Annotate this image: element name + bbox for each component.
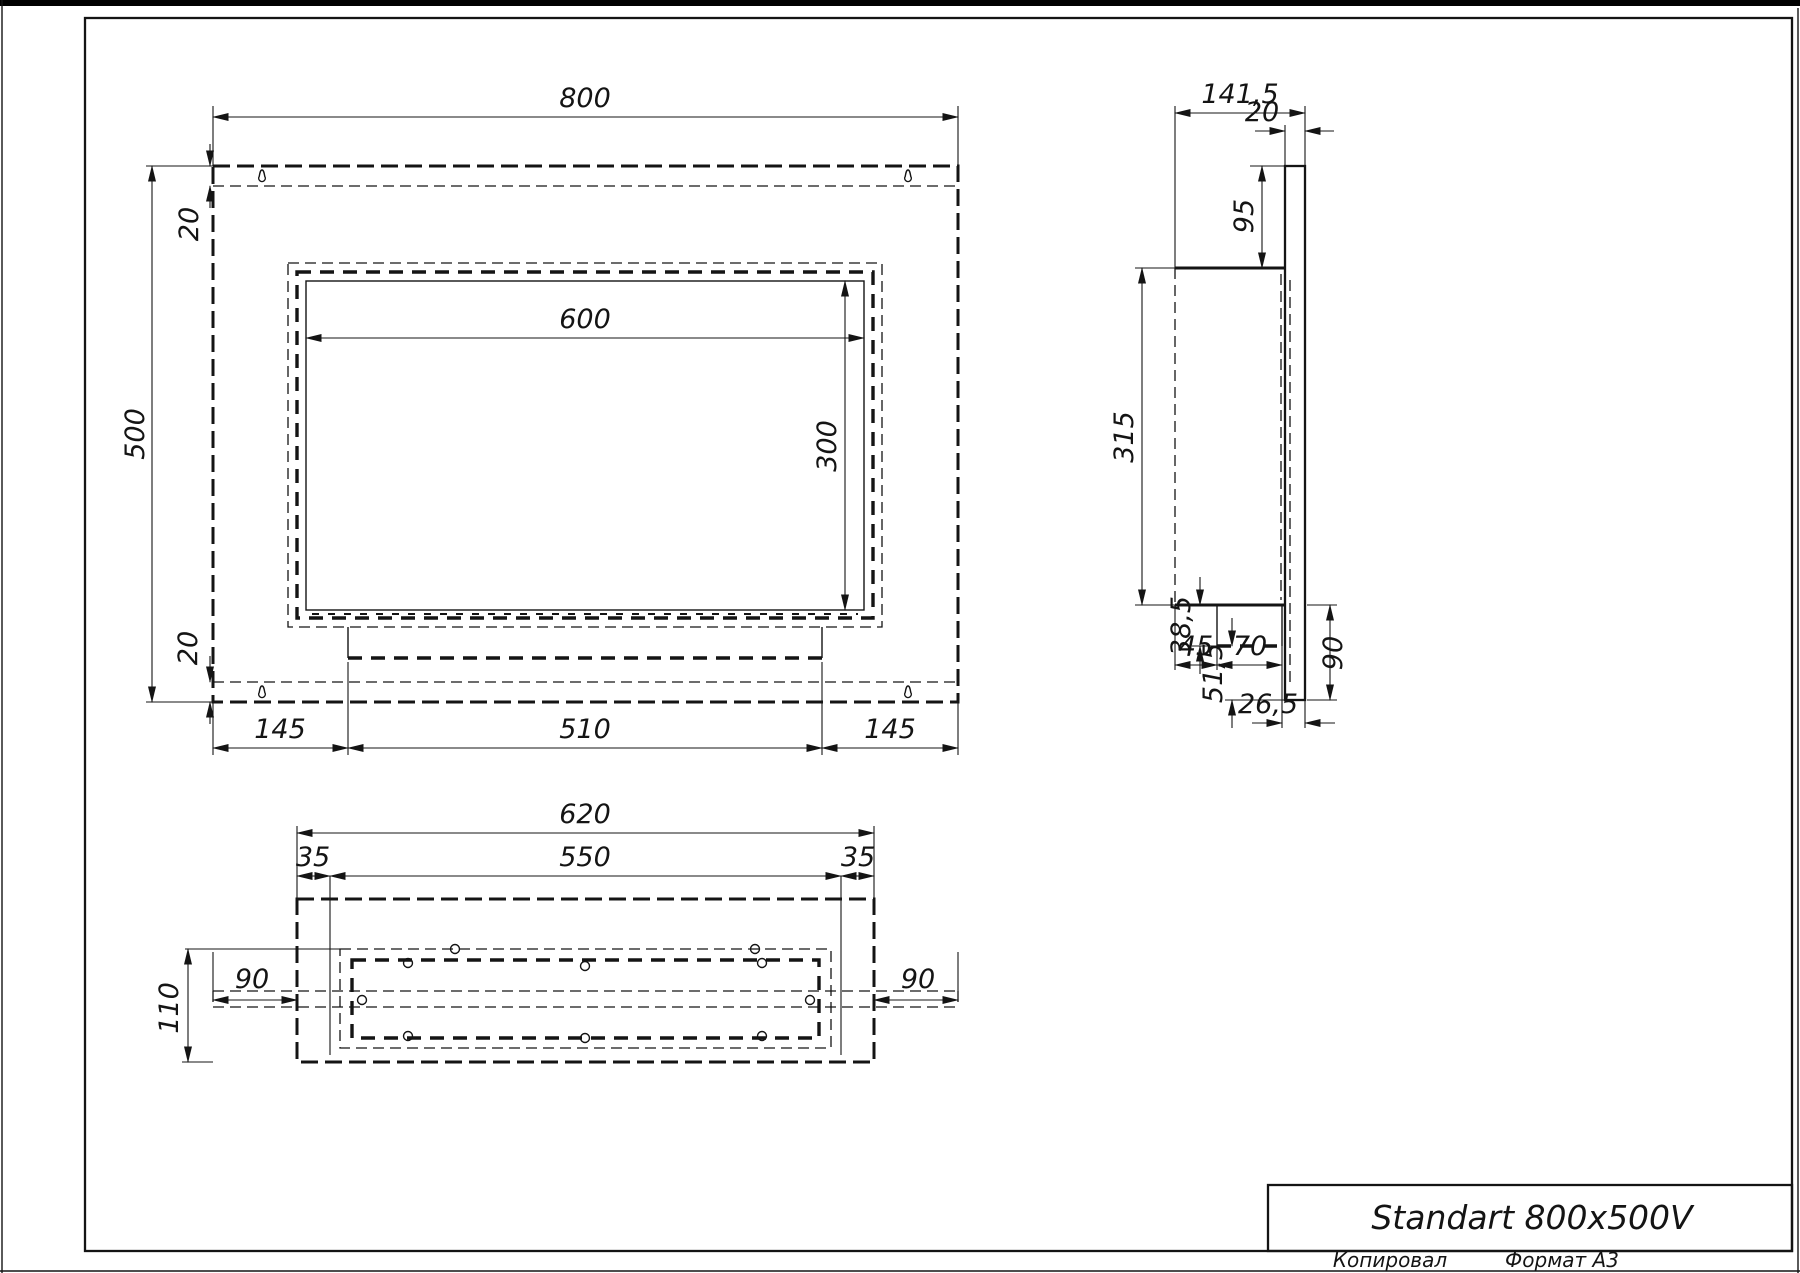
- side-dim-tray-depth: 70: [1233, 631, 1267, 662]
- front-dim-foot-right: 145: [864, 714, 916, 745]
- bottom-wall-plate-strip: [213, 991, 958, 1007]
- screw-hole: [806, 996, 815, 1005]
- keyhole-icon: [905, 170, 912, 182]
- front-dim-foot-center: 510: [559, 714, 611, 745]
- keyhole-icon: [259, 686, 266, 698]
- side-view: 141,5 20 95 315 38,5 51,5 45 70 90 26,5: [1109, 79, 1349, 728]
- front-dim-height: 500: [120, 408, 151, 460]
- side-dim-plate-thickness: 20: [1245, 97, 1279, 128]
- screw-hole: [358, 996, 367, 1005]
- front-flange-hidden-lines: [213, 186, 958, 682]
- front-dim-flange-bottom: 20: [173, 631, 204, 665]
- bottom-dim-depth: 110: [154, 982, 185, 1034]
- front-dim-width: 800: [559, 83, 611, 114]
- bottom-dim-flange-right: 90: [901, 964, 935, 995]
- front-dim-flange-top: 20: [174, 207, 205, 241]
- side-body-edges: [1175, 268, 1285, 605]
- drawing-frame: [85, 18, 1792, 1251]
- side-wall-plate: [1285, 166, 1305, 700]
- bottom-dim-width: 620: [559, 799, 611, 830]
- keyhole-icon: [259, 170, 266, 182]
- bottom-dim-flange-left: 90: [235, 964, 269, 995]
- scan-top-bar: [0, 0, 1800, 6]
- drawing-sheet: 800 500 20 20 600 300 145 510 145 141,5: [0, 0, 1800, 1273]
- screw-hole: [758, 959, 767, 968]
- bottom-dim-opening-width: 550: [559, 842, 611, 873]
- model-title: Standart 800x500V: [1371, 1198, 1695, 1237]
- side-dim-plate-drop: 90: [1318, 636, 1349, 670]
- front-frame-outline: [213, 166, 958, 702]
- screw-hole: [581, 962, 590, 971]
- bottom-dim-margin-left: 35: [296, 842, 330, 873]
- side-dim-front-gap: 45: [1179, 631, 1213, 662]
- keyhole-icon: [905, 686, 912, 698]
- front-view: 800 500 20 20 600 300 145 510 145: [120, 83, 958, 755]
- copied-label: Копировал: [1333, 1248, 1447, 1272]
- bottom-dim-margin-right: 35: [841, 842, 875, 873]
- side-dim-body-height: 315: [1109, 411, 1140, 463]
- front-dim-opening-height: 300: [812, 420, 843, 472]
- page-border: [0, 0, 1800, 1273]
- front-dim-foot-left: 145: [254, 714, 306, 745]
- title-block: Standart 800x500V Копировал Формат А3: [1268, 1185, 1792, 1272]
- format-label: Формат А3: [1505, 1248, 1619, 1272]
- bottom-view: 620 550 35 35 110 90 90: [154, 799, 958, 1062]
- front-dim-opening-width: 600: [559, 304, 611, 335]
- technical-drawing: 800 500 20 20 600 300 145 510 145 141,5: [0, 0, 1800, 1273]
- side-dim-top-offset: 95: [1229, 199, 1260, 233]
- bottom-opening-inner: [352, 960, 819, 1038]
- side-dim-back-gap: 26,5: [1238, 689, 1298, 720]
- front-tray-sides: [348, 627, 822, 658]
